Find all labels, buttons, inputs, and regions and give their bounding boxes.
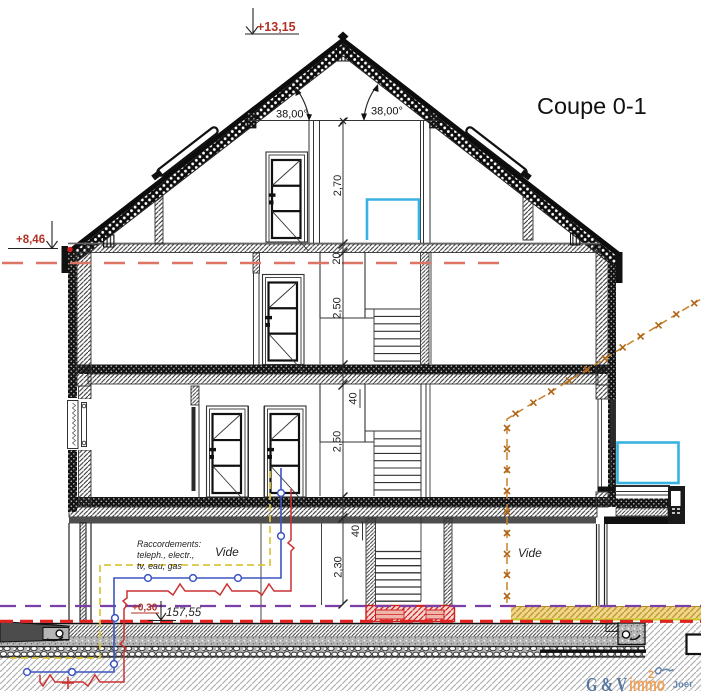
svg-text:+8,46: +8,46 — [16, 234, 45, 246]
svg-text:Joer: Joer — [672, 679, 693, 691]
svg-text:Raccordements:: Raccordements: — [137, 539, 202, 549]
svg-text:2,70: 2,70 — [332, 175, 344, 196]
svg-text:2,50: 2,50 — [331, 431, 343, 452]
svg-text:2,50: 2,50 — [331, 297, 343, 318]
svg-text:38,00°: 38,00° — [371, 106, 403, 118]
svg-text:+13,15: +13,15 — [257, 20, 296, 34]
svg-text:Coupe 0-1: Coupe 0-1 — [537, 93, 647, 119]
svg-text:teleph., electr.,: teleph., electr., — [137, 550, 194, 560]
svg-text:2,30: 2,30 — [332, 556, 344, 577]
svg-text:40: 40 — [350, 525, 362, 537]
svg-text:157,55: 157,55 — [166, 607, 202, 619]
svg-text:tv, eau, gas: tv, eau, gas — [137, 561, 182, 571]
svg-text:immo: immo — [629, 675, 665, 696]
svg-text:Vide: Vide — [518, 546, 542, 560]
svg-text:Vide: Vide — [215, 545, 239, 559]
svg-text:G & V: G & V — [586, 674, 627, 696]
svg-text:20: 20 — [331, 252, 343, 264]
svg-text:2: 2 — [648, 669, 654, 681]
svg-text:+0,30: +0,30 — [132, 603, 158, 614]
svg-text:38,00°: 38,00° — [276, 109, 308, 121]
svg-text:40: 40 — [347, 392, 359, 404]
